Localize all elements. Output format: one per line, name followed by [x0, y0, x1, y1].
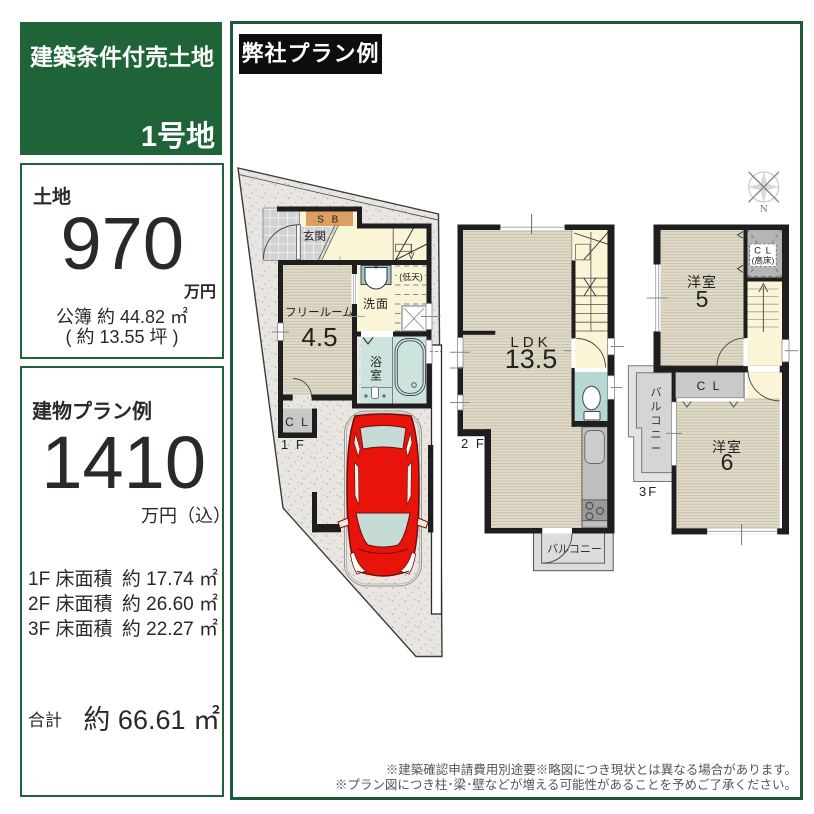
svg-text:6: 6	[721, 449, 734, 475]
svg-text:バルコニー: バルコニー	[547, 543, 602, 556]
svg-text:浴: 浴	[370, 355, 382, 369]
svg-text:洗面: 洗面	[363, 297, 389, 311]
svg-text:C L: C L	[285, 415, 310, 429]
svg-text:バ: バ	[651, 386, 662, 399]
svg-text:フリールーム: フリールーム	[285, 306, 354, 319]
svg-text:13.5: 13.5	[505, 344, 558, 374]
svg-text:玄関: 玄関	[303, 229, 326, 243]
svg-text:4.5: 4.5	[301, 322, 337, 352]
svg-text:コ: コ	[651, 415, 662, 427]
svg-text:室: 室	[370, 368, 382, 383]
svg-text:ル: ル	[651, 401, 662, 413]
svg-text:ニ: ニ	[651, 429, 662, 441]
svg-text:N: N	[760, 203, 768, 215]
svg-text:S B: S B	[317, 215, 341, 226]
svg-text:3F: 3F	[639, 484, 658, 499]
svg-text:ー: ー	[651, 443, 662, 455]
svg-text:(高床): (高床)	[752, 256, 775, 266]
svg-text:5: 5	[696, 286, 709, 312]
svg-text:1 F: 1 F	[281, 437, 306, 452]
svg-text:2 F: 2 F	[461, 436, 486, 451]
svg-text:C L: C L	[697, 379, 722, 393]
svg-text:(低天): (低天)	[399, 271, 423, 282]
